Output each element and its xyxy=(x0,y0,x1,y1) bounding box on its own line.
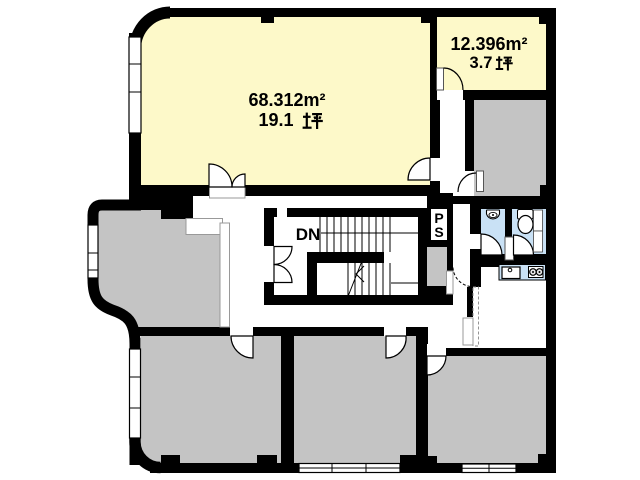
svg-text:DN: DN xyxy=(296,225,321,244)
svg-text:12.396m²: 12.396m² xyxy=(450,34,527,54)
svg-text:68.312m²: 68.312m² xyxy=(248,90,325,110)
svg-text:19.1: 19.1 xyxy=(258,110,293,130)
svg-text:3.7: 3.7 xyxy=(470,54,493,72)
svg-text:S: S xyxy=(434,224,443,240)
